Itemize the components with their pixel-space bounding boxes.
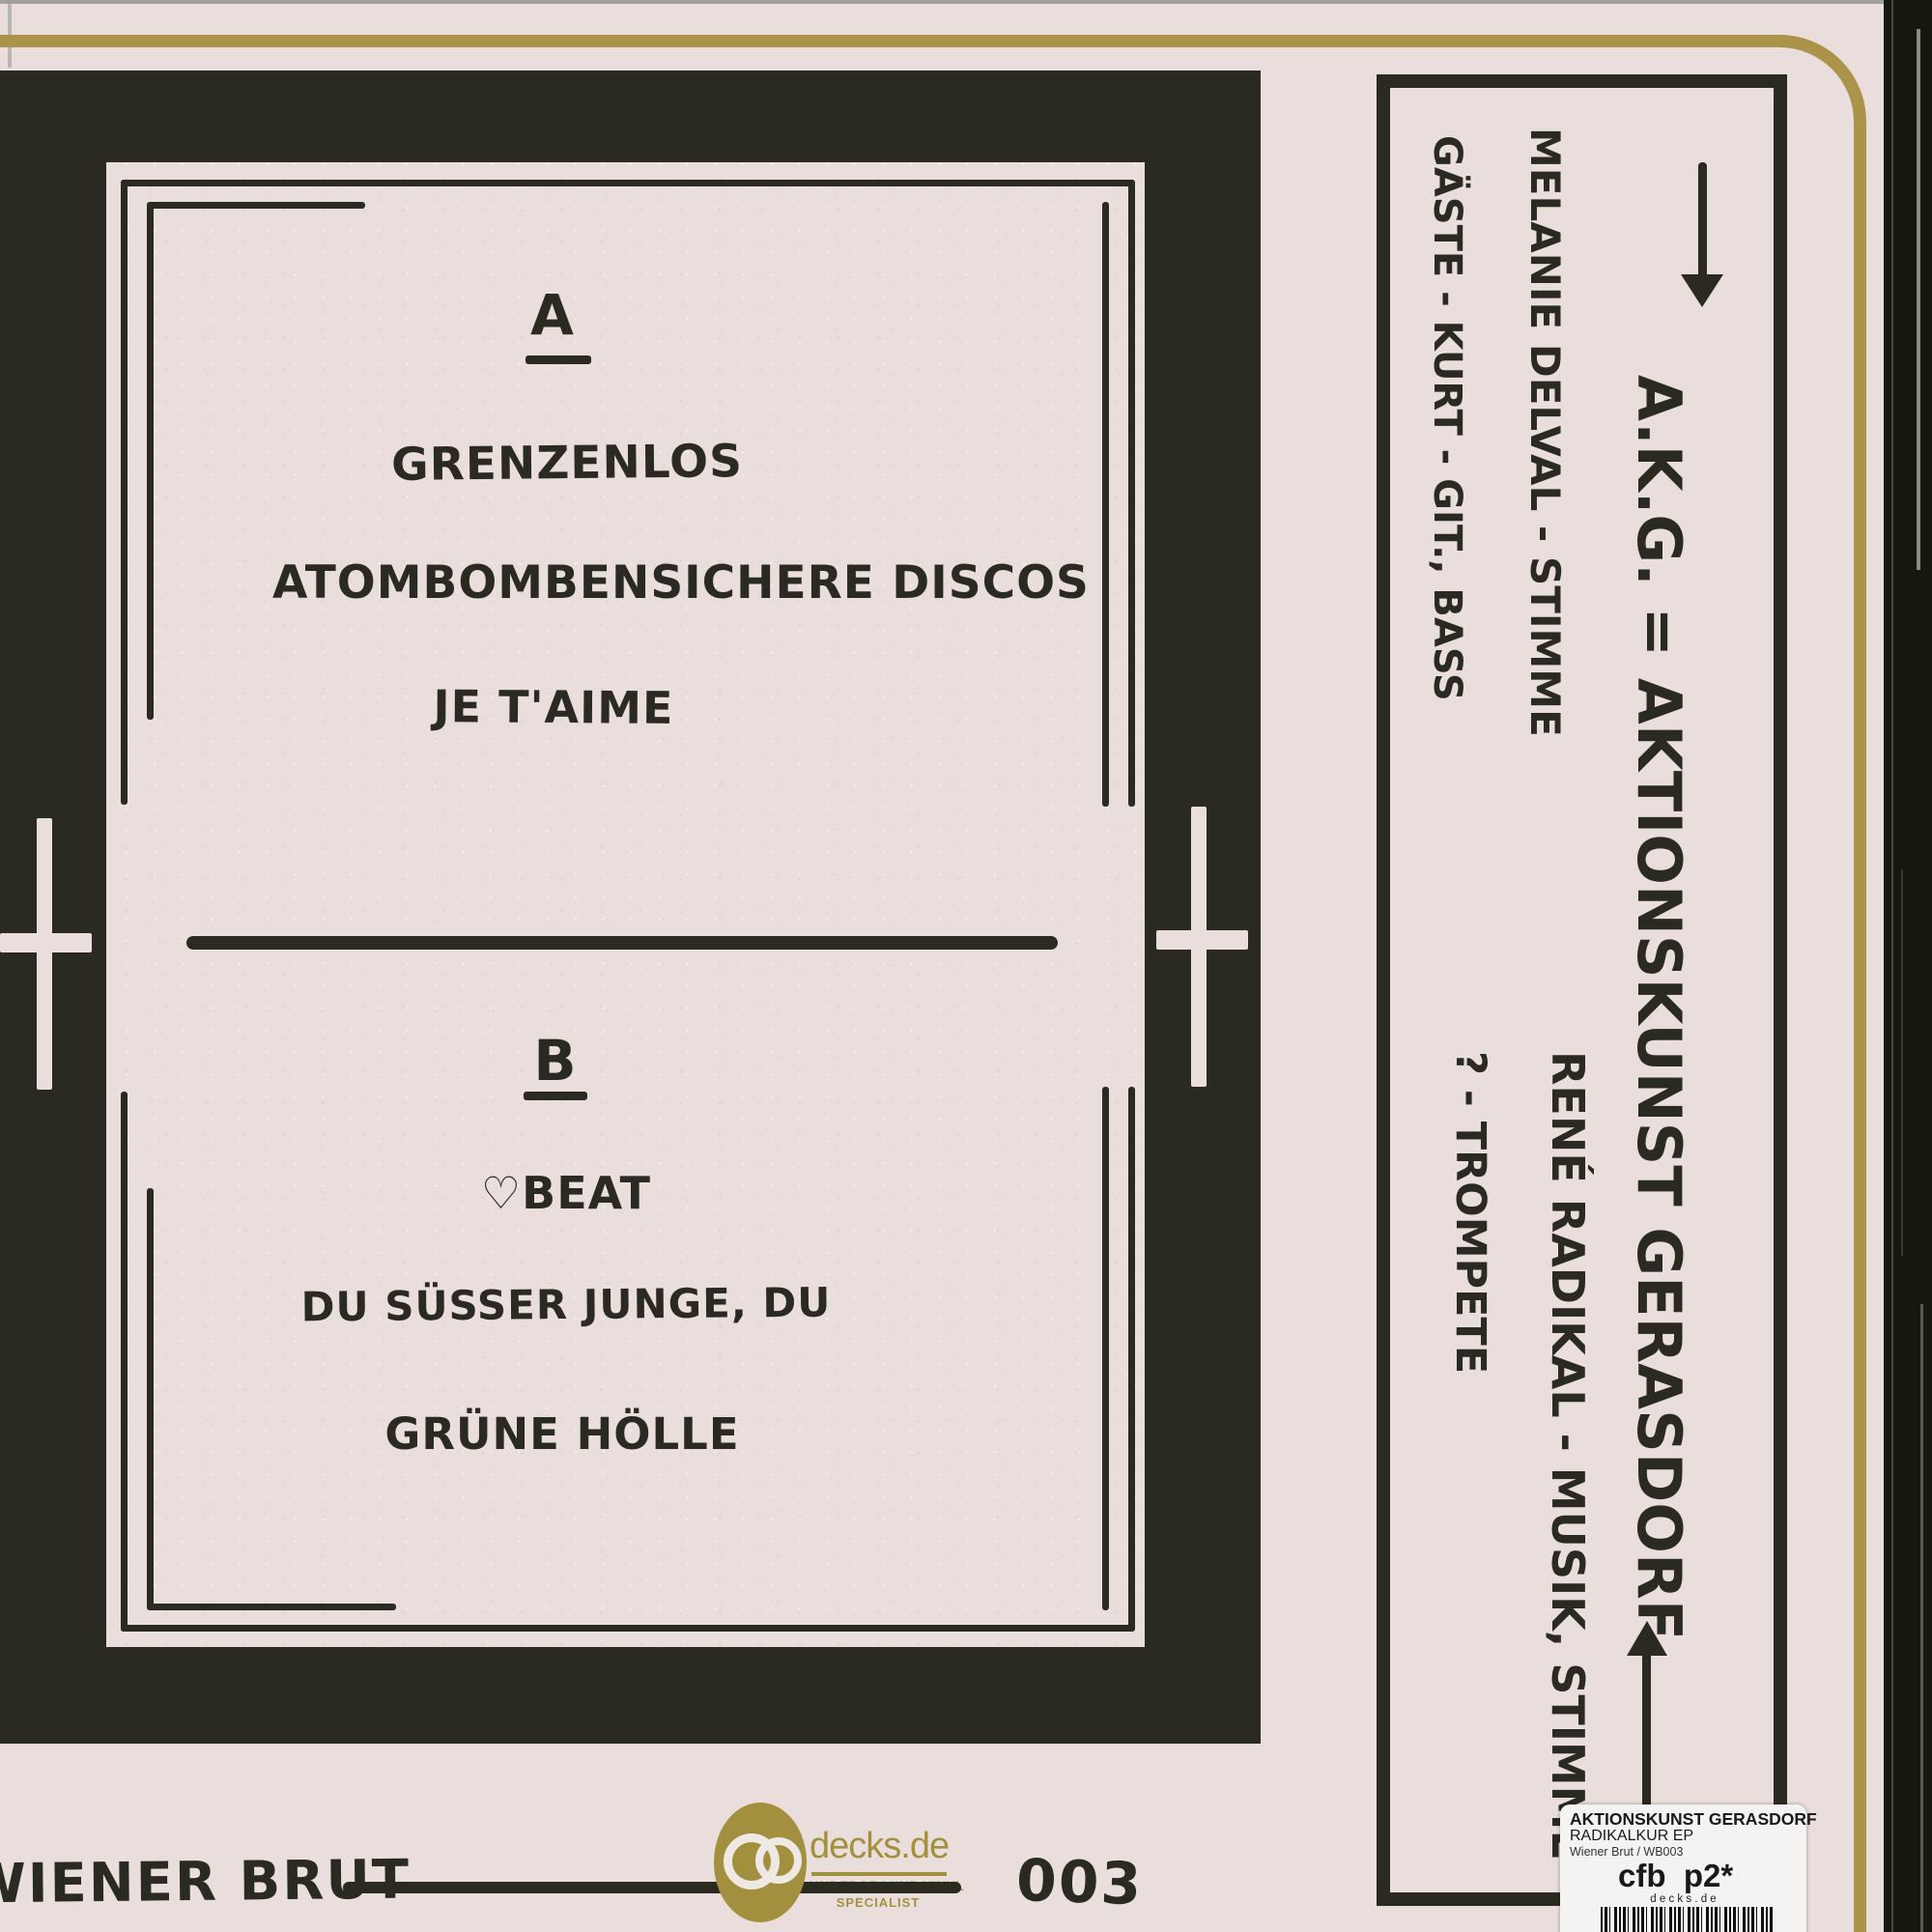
shop-logo-tagline2: SPECIALIST — [810, 1895, 947, 1910]
track-title: ♡BEAT — [180, 1167, 952, 1219]
credit-line-gaeste: GÄSTE - KURT - GIT., BASS — [1427, 135, 1469, 763]
shop-logo-record-ring-icon — [755, 1837, 802, 1884]
track-title: DU SÜSSER JUNGE, DU — [180, 1278, 952, 1332]
down-arrow-icon — [1698, 162, 1707, 280]
sticker-artist: AKTIONSKUNST GERASDORF — [1570, 1809, 1817, 1830]
track-title: ATOMBOMBENSICHERE DISCOS — [272, 556, 1045, 610]
inner-frame-line — [1128, 1087, 1135, 1632]
sleeve-edge-gloss — [1917, 29, 1920, 570]
sticker-shop-code: cfb p2* — [1618, 1858, 1733, 1894]
shop-logo-name: decks.de — [810, 1826, 949, 1867]
inner-frame-line — [121, 180, 1135, 186]
inner-frame-line — [1128, 180, 1135, 807]
registration-cross-left-icon — [37, 818, 52, 1090]
sticker-shop-name: d e c k s . d e — [1560, 1893, 1806, 1905]
side-a-underline — [526, 355, 591, 364]
side-a-label: A — [166, 282, 939, 348]
registration-cross-right-icon — [1156, 930, 1248, 950]
track-title-text: BEAT — [522, 1167, 651, 1219]
track-title: GRENZENLOS — [181, 433, 954, 494]
down-arrow-icon — [1681, 274, 1723, 307]
sleeve-edge-gloss — [1920, 1304, 1923, 1932]
side-b-label: B — [169, 1028, 942, 1094]
up-arrow-icon — [1627, 1621, 1667, 1656]
footer-rule-line — [343, 1882, 961, 1893]
inner-frame-line — [147, 1188, 154, 1610]
credit-line-rene: RENÉ RADIKAL - MUSIK, STIMME — [1546, 1051, 1594, 1891]
sleeve-edge-gloss — [1901, 869, 1903, 1256]
track-title: JE T'AIME — [167, 678, 940, 736]
sticker-label-catalog: Wiener Brut / WB003 — [1570, 1845, 1683, 1859]
track-title: GRÜNE HÖLLE — [176, 1408, 949, 1460]
top-edge-line — [0, 0, 1889, 4]
inner-frame-line — [1102, 202, 1109, 807]
sticker-title: RADIKALKUR EP — [1570, 1828, 1693, 1845]
shop-sticker: AKTIONSKUNST GERASDORF RADIKALKUR EP Wie… — [1560, 1804, 1806, 1932]
inner-frame-line — [147, 1604, 396, 1610]
credit-line-akg: A.K.G. = AKTIONSKUNST GERASDORF — [1631, 375, 1694, 1587]
inner-frame-line — [1102, 1087, 1109, 1610]
side-divider-line — [186, 936, 1058, 950]
inner-frame-line — [147, 202, 365, 209]
credit-line-trompete: ? - TROMPETE — [1449, 1051, 1494, 1384]
shop-logo-underline — [811, 1872, 947, 1876]
sticker-barcode — [1601, 1907, 1773, 1932]
registration-cross-left-icon — [0, 933, 92, 952]
record-back-cover-photo: A GRENZENLOS ATOMBOMBENSICHERE DISCOS JE… — [0, 0, 1932, 1932]
catalog-number: 003 — [1015, 1847, 1145, 1919]
sleeve-edge-gloss — [1891, 0, 1893, 1932]
heart-icon: ♡ — [481, 1167, 522, 1219]
inner-frame-line — [121, 1092, 128, 1632]
inner-frame-line — [121, 1625, 1135, 1632]
inner-frame-line — [147, 202, 154, 720]
credit-line-melanie: MELANIE DELVAL - STIMME — [1524, 128, 1569, 731]
inner-frame-line — [121, 180, 128, 805]
side-b-underline — [524, 1092, 587, 1100]
